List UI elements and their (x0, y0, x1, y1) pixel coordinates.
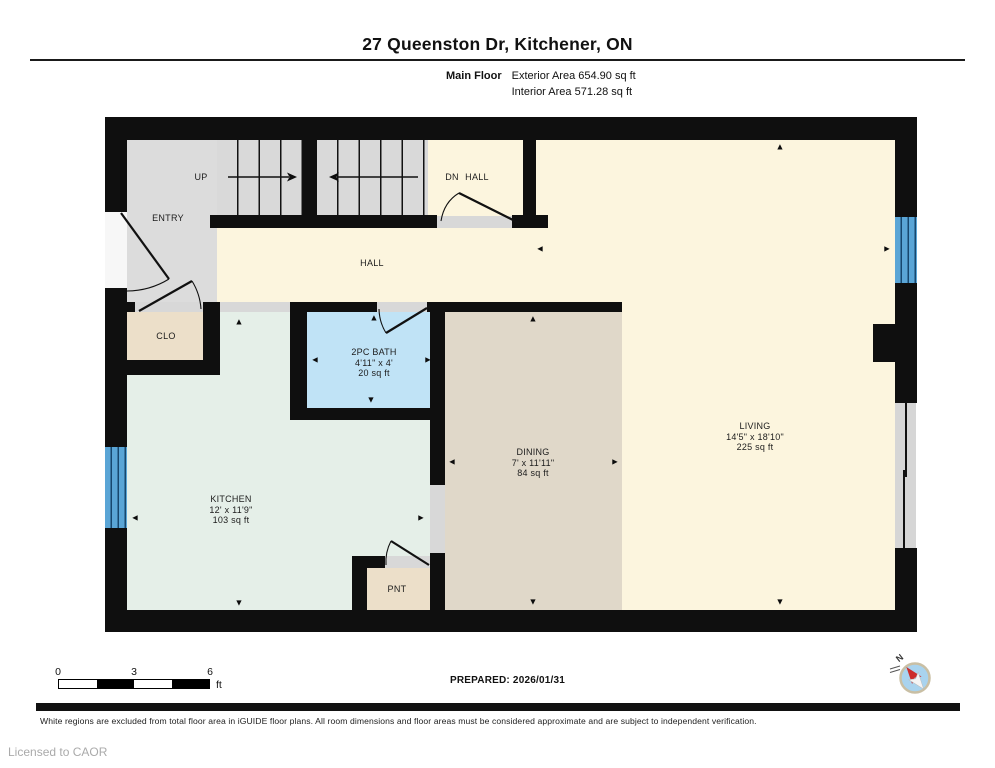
wall-segment (105, 610, 917, 632)
wall-segment (290, 408, 445, 420)
wall-segment (307, 302, 377, 312)
staircase-up (217, 140, 303, 215)
dimension-arrow-left-icon: ◄ (311, 356, 320, 365)
dimension-arrow-down-icon: ▼ (367, 396, 376, 405)
kitchen-opening (220, 302, 290, 312)
bath-door-opening (377, 302, 427, 312)
dimension-arrow-left-icon: ◄ (448, 458, 457, 467)
wall-segment (105, 360, 220, 375)
room-label-hall: HALL (360, 258, 384, 268)
dimension-arrow-right-icon: ► (424, 356, 433, 365)
dimension-arrow-up-icon: ▲ (235, 318, 244, 327)
dimension-arrow-right-icon: ► (611, 458, 620, 467)
scale-tick-3: 3 (131, 666, 137, 678)
wall-segment (895, 548, 917, 632)
room-label-entry: ENTRY (152, 213, 184, 223)
wall-segment (895, 117, 917, 217)
kitchen-dining-opening (430, 485, 445, 553)
hall-stair-threshold (437, 216, 523, 228)
wall-segment (303, 140, 317, 215)
wall-segment (430, 553, 445, 632)
room-label-kitchen: KITCHEN 12' x 11'9" 103 sq ft (209, 494, 252, 526)
dimension-arrow-down-icon: ▼ (529, 598, 538, 607)
floor-plan: N LIVING 14'5" x 18'10" 225 sq ft DINING… (0, 0, 995, 768)
room-label-hall-upper: HALL (465, 172, 489, 182)
room-label-closet: CLO (156, 331, 175, 341)
sliding-door-panel (903, 470, 905, 548)
prepared-date: PREPARED: 2026/01/31 (450, 675, 565, 686)
kitchen-window (105, 447, 127, 528)
wall-segment (105, 302, 135, 312)
wall-segment (105, 117, 917, 140)
scale-tick-6: 6 (207, 666, 213, 678)
scale-bar: 0 3 6 (58, 666, 210, 689)
closet-door-opening (135, 302, 203, 312)
dimension-arrow-right-icon: ► (883, 245, 892, 254)
compass-icon: N (890, 652, 930, 693)
dimension-arrow-down-icon: ▼ (235, 599, 244, 608)
staircase-down (317, 140, 428, 215)
living-window (895, 217, 917, 283)
wall-segment (430, 420, 445, 485)
scale-unit: ft (216, 679, 222, 691)
dimension-arrow-up-icon: ▲ (370, 314, 379, 323)
dimension-arrow-right-icon: ► (417, 514, 426, 523)
dimension-arrow-left-icon: ◄ (536, 245, 545, 254)
scale-tick-0: 0 (55, 666, 61, 678)
room-label-living: LIVING 14'5" x 18'10" 225 sq ft (726, 421, 784, 453)
stairs-up-label: UP (194, 172, 207, 182)
dimension-arrow-up-icon: ▲ (776, 143, 785, 152)
footer-divider-bar (36, 703, 960, 711)
disclaimer-text: White regions are excluded from total fl… (40, 716, 757, 726)
dimension-arrow-down-icon: ▼ (776, 598, 785, 607)
room-label-dining: DINING 7' x 11'11" 84 sq ft (512, 447, 555, 479)
wall-segment (105, 117, 127, 212)
dimension-arrow-up-icon: ▲ (529, 315, 538, 324)
wall-segment (290, 302, 307, 420)
wall-segment (523, 140, 536, 215)
license-text: Licensed to CAOR (8, 745, 107, 759)
compass-north-label: N (894, 652, 905, 664)
wall-segment (512, 215, 548, 228)
wall-segment (210, 215, 437, 228)
stairs-down-label: DN (445, 172, 459, 182)
room-label-bath: 2PC BATH 4'11" x 4' 20 sq ft (351, 347, 396, 379)
wall-segment (427, 302, 622, 312)
front-door-opening (105, 212, 127, 288)
wall-segment (352, 556, 367, 610)
pantry-door-opening (385, 556, 430, 568)
floor-plan-page: { "header": { "title": "27 Queenston Dr,… (0, 0, 995, 768)
sliding-door-panel (905, 403, 907, 477)
room-label-pantry: PNT (388, 584, 407, 594)
scale-bar-segments (58, 679, 210, 689)
wall-segment (873, 324, 917, 362)
dimension-arrow-left-icon: ◄ (131, 514, 140, 523)
